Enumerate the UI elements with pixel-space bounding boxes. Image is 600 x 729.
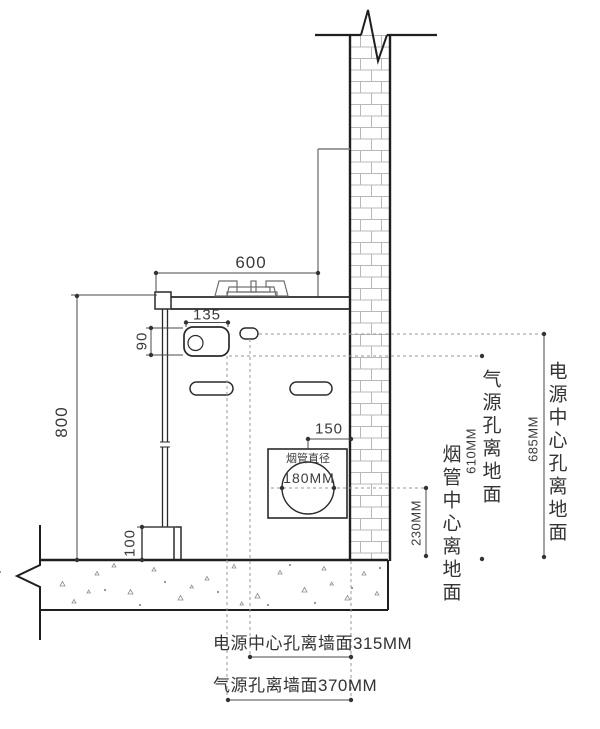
dim-flue-to-wall: 150 [315,421,343,438]
power-center-to-floor-label: 电源中心孔离地面 [547,361,566,545]
toe-kick [142,527,181,560]
gas-hole-to-floor-value: 610MM [464,428,479,474]
power-center-to-floor-value: 685MM [526,416,541,462]
flue-diameter-label: 烟管直径 [286,450,330,466]
counter-top [155,292,350,309]
drawer-handle-right [290,382,332,395]
flue-diameter-value: 180MM [283,470,335,486]
diagram-linework [0,0,600,729]
gas-inlet-box [184,327,229,356]
flue-center-to-floor-value: 230MM [409,500,424,546]
gas-hole-to-floor-label: 气源孔离地面 [481,369,500,507]
burner-profile [215,281,288,296]
dim-counter-height: 800 [52,406,72,437]
concrete-stipple [0,563,381,605]
power-outlet-oval [240,328,258,339]
gas-hole-to-wall-note: 气源孔离墙面370MM [213,671,377,696]
dim-gas-box-height: 90 [134,332,151,351]
floor-slab [0,560,388,610]
dim-gas-box-width: 135 [193,307,221,324]
duct-panel [318,149,350,297]
power-center-to-wall-note: 电源中心孔离墙面315MM [213,629,412,654]
floor-break-mark-left [17,525,40,640]
dim-toe-kick-height: 100 [122,529,139,557]
dim-counter-width: 600 [235,253,266,273]
cabinet-back-panel [160,309,170,527]
flue-center-to-floor-label: 烟管中心离地面 [441,444,460,605]
installation-section-diagram: 600 135 90 800 100 150 烟管直径 180MM 230MM … [0,0,600,729]
